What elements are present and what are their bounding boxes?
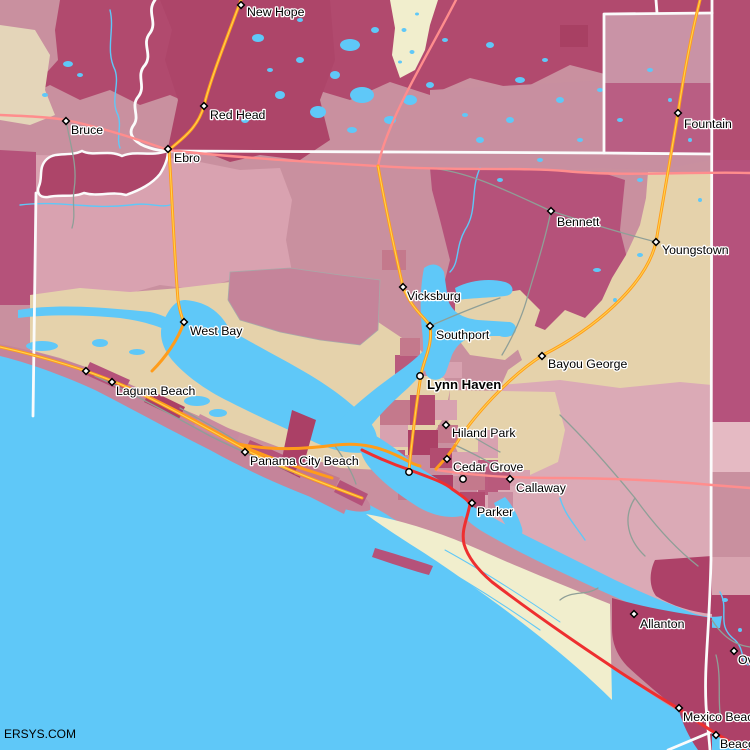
city-label-ebro: Ebro — [174, 151, 200, 165]
city-label-red-head: Red Head — [210, 108, 266, 122]
watermark: ERSYS.COM — [4, 727, 76, 741]
map-canvas: New HopeRed HeadBruceEbroFountainBennett… — [0, 0, 750, 750]
city-label-callaway: Callaway — [516, 481, 567, 495]
city-label-bennett: Bennett — [557, 215, 600, 229]
city-marker-lynn-haven — [417, 373, 423, 379]
city-label-parker: Parker — [477, 505, 513, 519]
city-label-panama-city-beach: Panama City Beach — [250, 454, 359, 468]
city-label-vicksburg: Vicksburg — [407, 289, 461, 303]
city-marker-unnamed — [406, 469, 412, 475]
city-label-bayou-george: Bayou George — [548, 357, 627, 371]
map-container: New HopeRed HeadBruceEbroFountainBennett… — [0, 0, 750, 750]
city-label-beacon-hill: Beacon Hill — [720, 737, 750, 750]
city-label-mexico-beach: Mexico Beach — [683, 710, 750, 724]
city-label-allanton: Allanton — [640, 617, 685, 631]
city-label-youngstown: Youngstown — [662, 243, 729, 257]
city-label-west-bay: West Bay — [190, 324, 243, 338]
city-label-bruce: Bruce — [71, 123, 103, 137]
city-label-fountain: Fountain — [684, 117, 732, 131]
city-label-overstreet: Overstreet — [738, 653, 750, 667]
city-label-hiland-park: Hiland Park — [452, 426, 516, 440]
city-marker-unnamed — [460, 476, 466, 482]
city-label-laguna-beach: Laguna Beach — [116, 384, 195, 398]
city-label-southport: Southport — [436, 328, 490, 342]
city-label-lynn-haven: Lynn Haven — [427, 377, 501, 392]
city-label-new-hope: New Hope — [247, 5, 305, 19]
city-label-cedar-grove: Cedar Grove — [453, 460, 524, 474]
